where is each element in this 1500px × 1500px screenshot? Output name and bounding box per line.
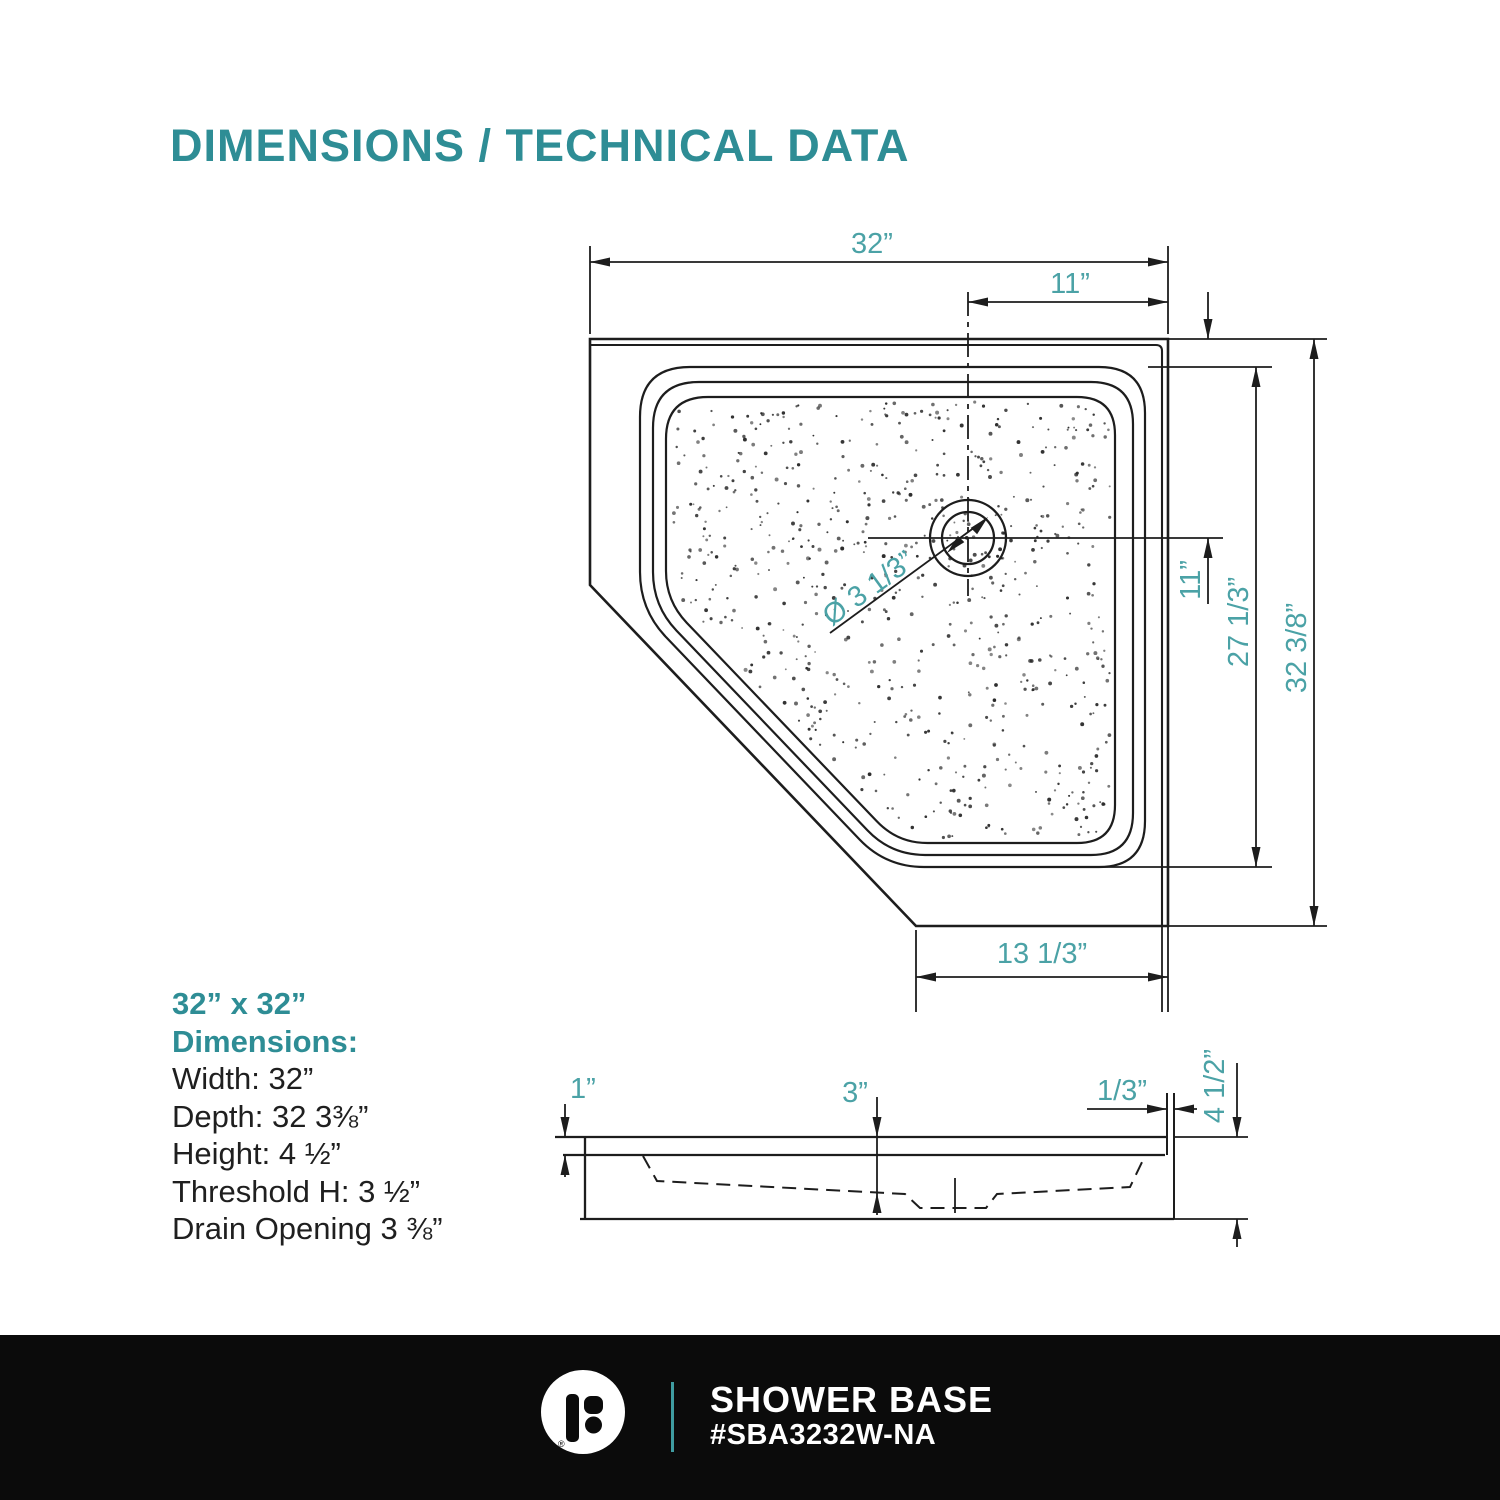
spec-drain-opening: Drain Opening 3 ⅜” [172,1210,443,1248]
spec-height: Height: 4 ½” [172,1135,443,1173]
logo-circle [541,1370,625,1454]
logo-square [584,1396,603,1414]
dim-width-label: 32” [851,228,893,260]
footer-bar: ® SHOWER BASE #SBA3232W-NA [0,1335,1500,1500]
base-outline [590,339,1168,926]
brand-logo: ® [538,1367,628,1457]
top-view: 32” 11” 11” 27 1/3” 32 3/8” 13 1/3” Ø 3 … [590,228,1327,1012]
side-basin-profile [643,1156,1145,1208]
dim-drain-diameter-label: Ø 3 1/3” [817,545,921,632]
spec-heading: Dimensions: [172,1023,443,1061]
footer-divider [671,1382,674,1452]
spec-threshold: Threshold H: 3 ½” [172,1173,443,1211]
dim-basin-depth-label: 3” [842,1077,868,1109]
page: DIMENSIONS / TECHNICAL DATA [0,0,1500,1500]
spec-width: Width: 32” [172,1060,443,1098]
logo-bar [566,1394,579,1442]
rim-line-1 [640,367,1145,867]
rim-line-3 [666,397,1115,843]
spec-size: 32” x 32” [172,985,443,1023]
spec-block: 32” x 32” Dimensions: Width: 32” Depth: … [172,985,443,1248]
dim-depth-label: 32 3/8” [1281,603,1313,693]
dim-bottom-edge-label: 13 1/3” [997,938,1087,970]
footer-sku: #SBA3232W-NA [710,1419,993,1451]
dim-inner-depth-label: 27 1/3” [1223,577,1255,667]
logo-registered-mark: ® [558,1439,565,1449]
technical-drawing: 32” 11” 11” 27 1/3” 32 3/8” 13 1/3” Ø 3 … [0,0,1500,1500]
footer-product-name: SHOWER BASE [710,1381,993,1419]
spec-depth: Depth: 32 3⅜” [172,1098,443,1136]
rim-line-2 [653,382,1133,855]
dim-lip-label: 1/3” [1097,1075,1147,1107]
dim-offset-top-label: 11” [1050,268,1090,300]
logo-dot [585,1417,602,1434]
dim-height-label: 4 1/2” [1199,1049,1231,1123]
dim-rim-label: 1” [570,1073,596,1105]
side-view: 1” 3” 1/3” 4 1/2” [555,1049,1248,1247]
dim-offset-right-label: 11” [1175,560,1207,600]
dimension-lines [590,246,1327,1012]
speckle-field [672,401,1111,840]
